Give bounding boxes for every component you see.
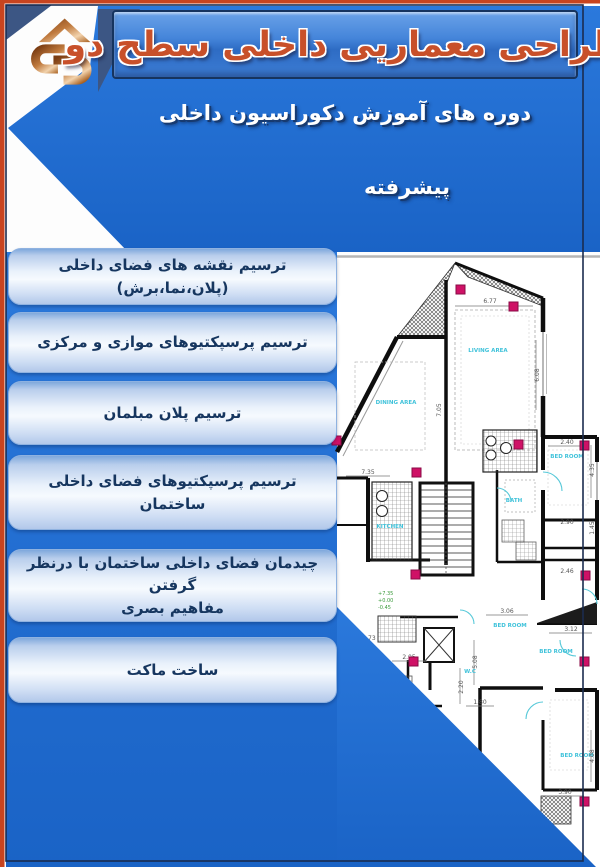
room-label: LIVING AREA — [468, 348, 508, 354]
topic-button-6[interactable]: ساخت ماکت — [8, 637, 337, 703]
dimension-label: 7.35 — [361, 469, 375, 476]
title-banner: طراحی معماریی داخلی سطح دو — [112, 10, 578, 79]
plan-marker — [509, 302, 518, 311]
level-label: +0.00 — [378, 598, 393, 604]
dimension-label: 4.08 — [589, 749, 596, 763]
dimension-label: 6.77 — [483, 298, 497, 305]
dimension-label: 1.45 — [589, 521, 596, 535]
dimension-label: 3.12 — [564, 626, 578, 633]
dimension-label: 1.80 — [473, 699, 487, 706]
plan-marker — [412, 468, 421, 477]
room-label: BED ROOM — [550, 454, 584, 460]
room-label: W.C — [464, 669, 476, 675]
dimension-label: 2.40 — [560, 439, 574, 446]
page-edge-accent-top — [0, 0, 600, 4]
room-label: KITCHEN — [376, 524, 403, 530]
dimension-label: 2.46 — [560, 568, 574, 575]
dimension-label: 2.90 — [560, 519, 574, 526]
topic-button-3[interactable]: ترسیم پلان مبلمان — [8, 381, 337, 445]
room-label: BED ROOM — [493, 623, 527, 629]
subtitle-block: دوره های آموزش دکوراسیون داخلی پیشرفته — [112, 98, 578, 199]
dimension-label: 5.08 — [472, 655, 479, 669]
dimension-label: 3.90 — [558, 789, 572, 796]
page-title: طراحی معماریی داخلی سطح دو — [64, 25, 600, 65]
plan-marker — [411, 570, 420, 579]
topic-button-1[interactable]: ترسیم نقشه های فضای داخلی (پلان،نما،برش) — [8, 248, 337, 305]
subtitle-line-1: دوره های آموزش دکوراسیون داخلی — [112, 98, 578, 128]
plan-marker — [580, 797, 589, 806]
level-label: +7.35 — [378, 591, 393, 597]
topic-button-4[interactable]: ترسیم پرسپکتیوهای فضای داخلی ساختمان — [8, 455, 337, 530]
dimension-label: 4.35 — [589, 463, 596, 477]
room-label: BED ROOM — [539, 649, 573, 655]
plan-marker — [514, 440, 523, 449]
plan-marker — [580, 657, 589, 666]
plan-marker — [580, 441, 589, 450]
plan-marker — [409, 657, 418, 666]
room-label: BATH — [506, 498, 523, 504]
room-label: DINING AREA — [376, 400, 418, 406]
dimension-label: 7.05 — [436, 403, 443, 417]
plan-marker — [456, 285, 465, 294]
subtitle-line-2: پیشرفته — [174, 175, 600, 199]
page-edge-accent-left — [0, 0, 5, 867]
dimension-label: 2.20 — [458, 680, 465, 694]
dimension-label: 6.08 — [534, 368, 541, 382]
topic-button-5[interactable]: چیدمان فضای داخلی ساختمان با درنظر گرفتن… — [8, 549, 337, 622]
level-label: -0.45 — [378, 605, 391, 611]
dimension-label: 3.06 — [500, 608, 514, 615]
topic-button-2[interactable]: ترسیم پرسپکتیوهای موازی و مرکزی — [8, 312, 337, 373]
